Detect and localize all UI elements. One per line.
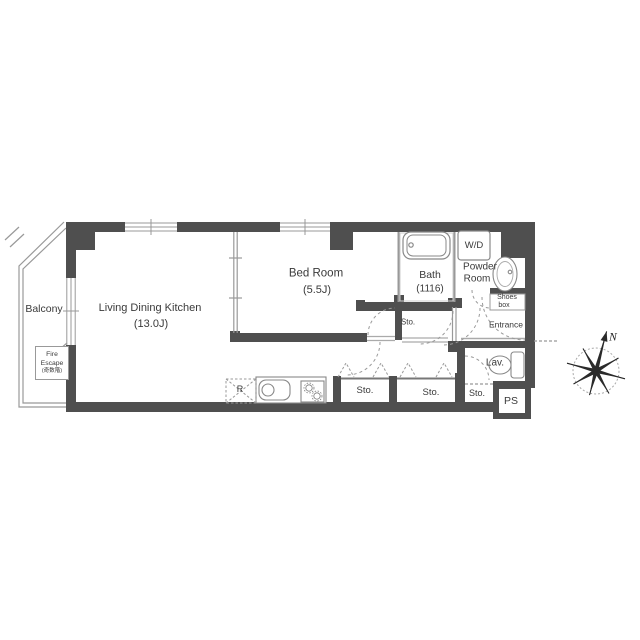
windows: [63, 219, 330, 345]
shoes-box-label-line2: box: [498, 302, 509, 310]
balcony-label: Balcony: [25, 304, 62, 316]
floor-plan-drawing: [0, 0, 640, 640]
washer-dryer-label: W/D: [465, 241, 483, 251]
entrance-label: Entrance: [489, 320, 523, 329]
folding-door-icons: [338, 363, 452, 377]
bath-name-label: Bath: [419, 270, 441, 282]
lavatory-label: Lav.: [486, 358, 504, 369]
storage-hall-label: Sto.: [401, 319, 415, 328]
pipe-space-label: PS: [504, 396, 518, 408]
bedroom-name-label: Bed Room: [289, 268, 343, 281]
powder-room-label-line2: Room: [464, 274, 491, 285]
refrigerator-label: R: [237, 385, 244, 395]
bedroom-size-label: (5.5J): [303, 284, 331, 296]
ldk-name-label: Living Dining Kitchen: [99, 302, 202, 314]
bathtub-icon: [403, 232, 450, 259]
compass-north-label: N: [609, 332, 617, 345]
fire-escape-line2: Escape: [41, 360, 64, 368]
fire-escape-line3: (奇数階): [42, 368, 62, 375]
fire-escape-sign: Fire Escape (奇数階): [35, 346, 69, 380]
floor-plan: Balcony Fire Escape (奇数階) Living Dining …: [0, 0, 640, 640]
storage-closet-3-label: Sto.: [469, 389, 485, 399]
ldk-size-label: (13.0J): [134, 318, 168, 330]
powder-room-label-line1: Powder: [463, 262, 497, 273]
bath-size-label: (1116): [416, 284, 443, 295]
storage-closet-1-label: Sto.: [357, 386, 374, 396]
fire-escape-line1: Fire: [46, 351, 58, 359]
storage-closet-2-label: Sto.: [423, 388, 440, 398]
